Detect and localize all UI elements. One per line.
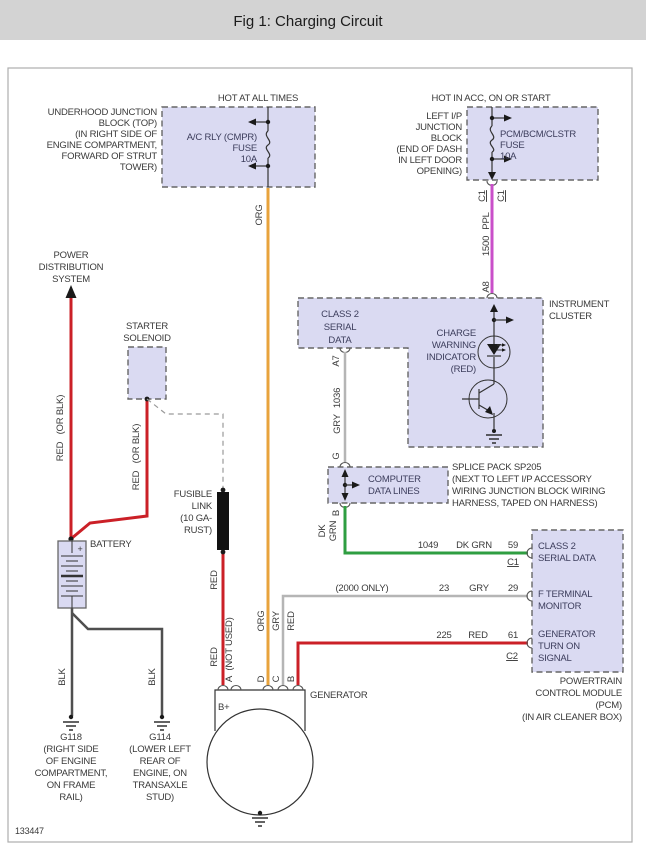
starter-solenoid-box [128,347,166,399]
terminal-id-label: A [224,675,235,682]
splice-pack-label-line: SPLICE PACK SP205 [452,462,541,473]
class2-label-line: CLASS 2 [321,309,359,320]
fuse-label-line: 10A [241,154,258,165]
charge-indicator-label-line: WARNING [432,340,476,351]
pcm-block-label-line: (PCM) [596,700,622,711]
dk-grn-label: DK [317,524,328,538]
generator-label: GENERATOR [310,690,368,701]
cluster-label-line: INSTRUMENT [549,299,610,310]
wire-color-label: DK GRN [456,540,492,551]
fusible-link-label-line: (10 GA- [180,513,212,524]
fusible-link-label-line: RUST) [184,525,212,536]
fuse-label-line: FUSE [500,140,525,151]
connector-a8-label: A8 [481,281,492,292]
pcm-block: CLASS 2 SERIAL DATA F TERMINAL MONITOR G… [522,530,623,723]
terminal-wire-label: RED [286,611,297,631]
computer-data-label-line: COMPUTER [368,474,421,485]
hot-at-all-times-label: HOT AT ALL TIMES [218,93,298,104]
charge-indicator-label-line: CHARGE [437,328,476,339]
terminal-wire-label: GRY [271,610,282,631]
note-2000-only-label: (2000 ONLY) [335,583,388,594]
red-or-blk-wire-label: RED (OR BLK) [131,424,142,490]
connector-b-label: B [331,510,342,516]
ppl-wire-circuit-label: 1500 [481,236,492,256]
blk-wire-label: BLK [147,667,158,685]
ground-label-line: G114 [149,732,171,743]
pcm-pin-label-line: GENERATOR [538,629,596,640]
pcm-block-label-line: POWERTRAIN [560,676,623,687]
fuse-label-line: PCM/BCM/CLSTR [500,129,576,140]
power-dist-label-line: DISTRIBUTION [39,262,104,273]
connector-a7-label: A7 [331,355,342,366]
charge-indicator-label-line: INDICATOR [426,352,476,363]
fuse-label-line: A/C RLY (CMPR) [187,132,257,143]
block-label-line: ENGINE COMPARTMENT, [47,140,157,151]
circuit-number-label: 23 [439,583,449,594]
ppl-wire-color-label: PPL [481,212,492,229]
class2-label-line: SERIAL [324,322,357,333]
block-label-line: BLOCK [431,133,463,144]
block-label-line: (END OF DASH [396,144,462,155]
power-dist-label-line: SYSTEM [52,274,90,285]
page-title: Fig 1: Charging Circuit [233,13,383,30]
battery-plus-sign: + [77,544,82,554]
charging-circuit-diagram: Fig 1: Charging Circuit 133447 HOT AT AL… [0,0,646,858]
pin-number-label: 61 [508,630,518,641]
connector-c1-label: C1 [477,190,488,202]
circuit-number-label: 225 [436,630,451,641]
circuit-number-label: 1049 [418,540,438,551]
starter-solenoid-label-line: STARTER [126,321,168,332]
ground-label-line: (RIGHT SIDE [43,744,98,755]
pcm-pin-label-line: F TERMINAL [538,589,592,600]
pin-number-label: 59 [508,540,518,551]
charging-circuit-page: Fig 1: Charging Circuit 133447 HOT AT AL… [0,0,646,858]
gry-wire-color-label: GRY [332,413,343,434]
fusible-link-label-line: FUSIBLE [174,489,212,500]
splice-pack-label-line: (NEXT TO LEFT I/P ACCESSORY [452,474,593,485]
red-wire-label: RED [209,647,220,667]
b-plus-label: B+ [218,702,230,713]
pcm-block-label-line: (IN AIR CLEANER BOX) [522,712,622,723]
power-dist-label-line: POWER [54,250,89,261]
block-label-line: TOWER) [120,162,157,173]
charge-indicator-label-line: (RED) [451,364,476,375]
block-label-line: LEFT I/P [426,111,462,122]
pcm-pin-label-line: MONITOR [538,601,582,612]
fuse-label-line: FUSE [232,143,257,154]
connector-g-label: G [331,452,342,459]
ground-label-line: REAR OF [140,756,181,767]
cluster-label-line: CLUSTER [549,311,592,322]
connector-c1-label: C1 [507,557,519,568]
block-label-line: (IN RIGHT SIDE OF [75,129,157,140]
pcm-block-label-line: CONTROL MODULE [535,688,622,699]
dk-grn-label: GRN [328,520,339,541]
terminal-id-label: C [271,675,282,682]
fusible-link-body [217,492,229,550]
class2-label-line: DATA [328,335,352,346]
terminal-wire-label: (NOT USED) [224,617,235,670]
block-label-line: BLOCK (TOP) [99,118,157,129]
connector-c1-label: C1 [496,190,507,202]
junction-dot [221,488,226,493]
pin-number-label: 29 [508,583,518,594]
ground-label-line: TRANSAXLE [133,780,188,791]
hot-in-acc-label: HOT IN ACC, ON OR START [432,93,551,104]
ground-label-line: ENGINE, ON [133,768,187,779]
junction-block-box [467,107,598,180]
red-or-blk-wire-label: RED (OR BLK) [55,395,66,461]
pcm-pin-label-line: TURN ON [538,641,580,652]
ground-label-line: OF ENGINE [46,756,96,767]
fuse-label-line: 10A [500,151,517,162]
terminal-id-label: D [256,675,267,682]
pcm-pin-label-line: CLASS 2 [538,541,576,552]
wire-color-label: RED [468,630,488,641]
computer-data-label-line: DATA LINES [368,486,420,497]
gry-wire-circuit-label: 1036 [332,388,343,408]
blk-wire-label: BLK [57,667,68,685]
splice-pack-label-line: HARNESS, TAPED ON HARNESS) [452,498,597,509]
diagram-frame [8,68,632,842]
ground-label-line: STUD) [146,792,174,803]
block-label-line: UNDERHOOD JUNCTION [48,107,158,118]
ground-label-line: COMPARTMENT, [35,768,108,779]
red-wire-label: RED [209,570,220,590]
block-label-line: OPENING) [417,166,462,177]
pcm-pin-label-line: SERIAL DATA [538,553,597,564]
battery-label: BATTERY [90,539,132,550]
ground-label-line: ON FRAME [47,780,96,791]
fusible-link-label-line: LINK [192,501,213,512]
terminal-id-label: B [286,676,297,682]
junction-dot [221,550,226,555]
starter-solenoid: STARTER SOLENOID [123,321,171,401]
splice-pack-label-line: WIRING JUNCTION BLOCK WIRING [452,486,605,497]
ground-label-line: G118 [60,732,82,743]
figure-id: 133447 [15,826,44,836]
starter-solenoid-label-line: SOLENOID [123,333,171,344]
block-label-line: FORWARD OF STRUT [62,151,158,162]
ground-label-line: (LOWER LEFT [129,744,191,755]
org-wire-label: ORG [254,204,265,225]
pcm-pin-label-line: SIGNAL [538,653,572,664]
block-label-line: IN LEFT DOOR [398,155,462,166]
terminal-wire-label: ORG [256,610,267,631]
ground-label-line: RAIL) [59,792,82,803]
connector-c2-label: C2 [506,651,518,662]
block-label-line: JUNCTION [416,122,463,133]
wire-color-label: GRY [469,583,490,594]
